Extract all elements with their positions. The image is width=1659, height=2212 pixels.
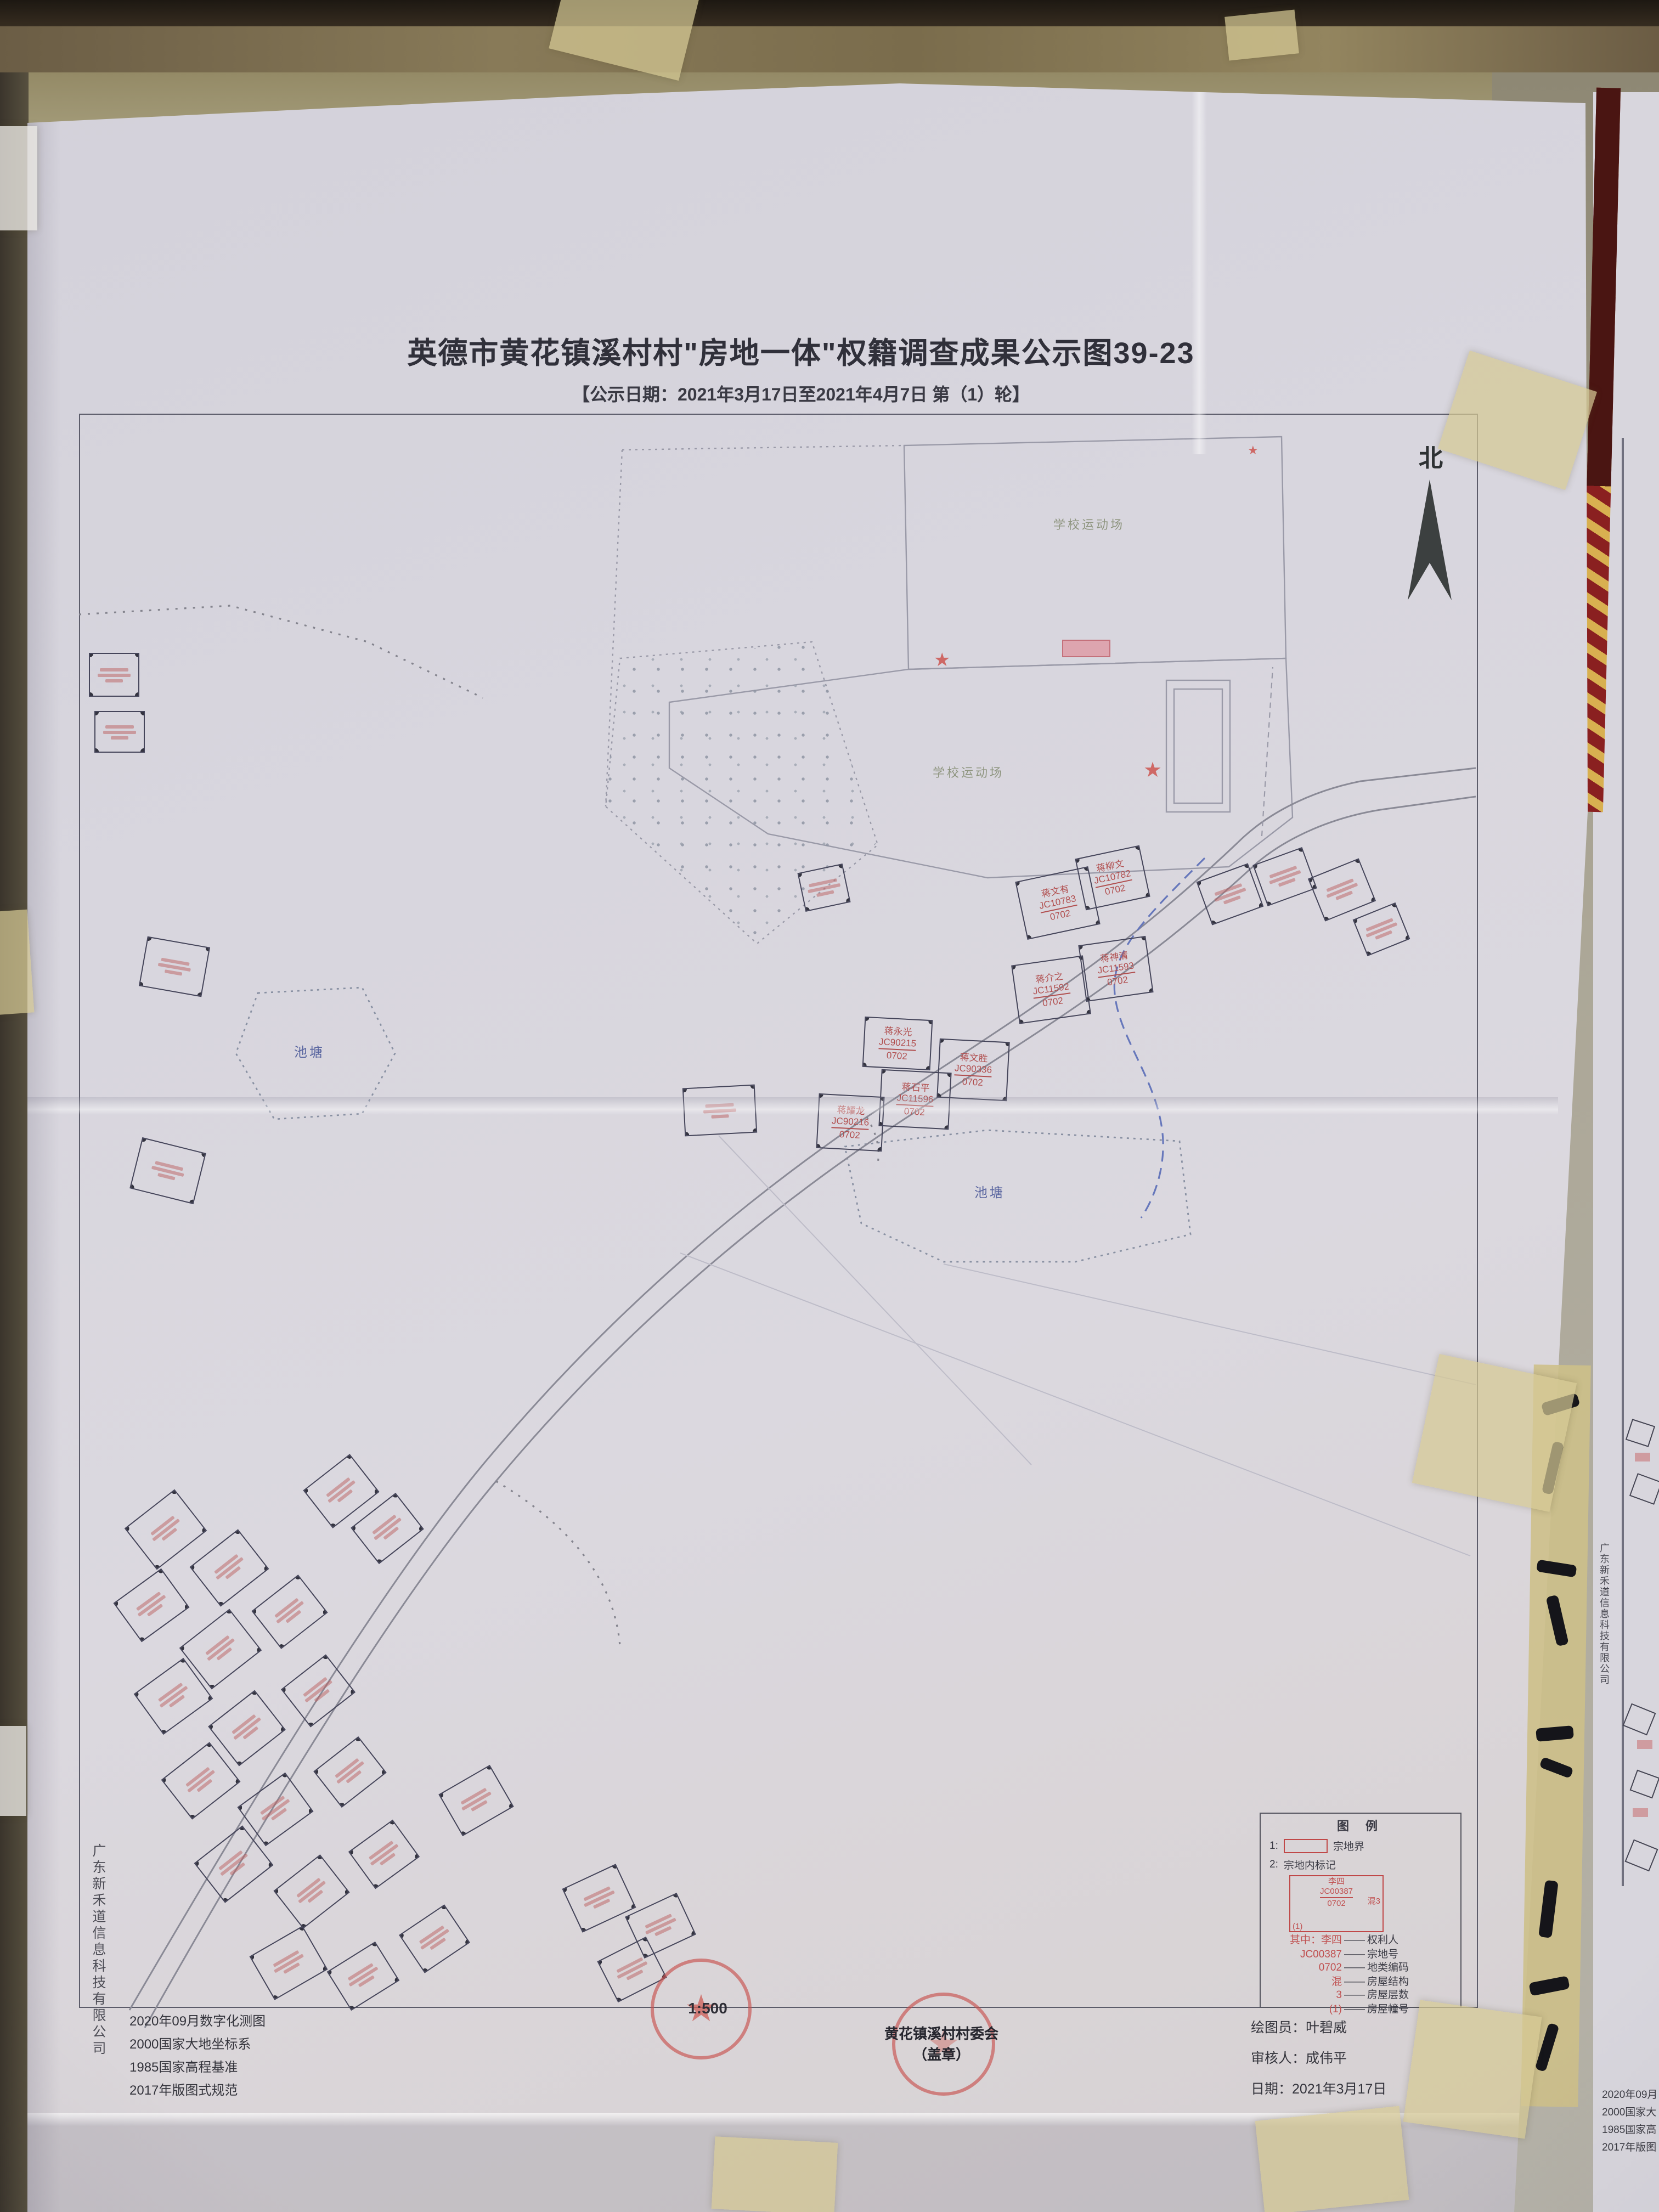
parcel-label: 蒋文有JC107830702 bbox=[1036, 882, 1080, 924]
legend-item-parcel-boundary: 1: 宗地界 bbox=[1269, 1838, 1460, 1853]
adjacent-parcel-label bbox=[1633, 1808, 1648, 1817]
sample-land-code: 0702 bbox=[1327, 1898, 1345, 1908]
sample-floors: 混3 bbox=[1368, 1896, 1380, 1906]
parcel-label-illegible bbox=[211, 1550, 248, 1585]
legend-item-parcel-annotation: 2: 宗地内标记 bbox=[1269, 1857, 1460, 1872]
parcel-label-illegible bbox=[1323, 875, 1361, 905]
tape-piece bbox=[1224, 10, 1299, 61]
owner-name: 蒋永光 bbox=[884, 1025, 912, 1038]
paper-crease bbox=[1192, 92, 1207, 454]
credits-block: 绘图员：叶碧威 审核人：成伟平 日期：2021年3月17日 bbox=[1251, 2012, 1386, 2104]
parcel-label-illegible bbox=[300, 1673, 337, 1708]
parcel-number: JC90336 bbox=[954, 1063, 992, 1077]
school-field-label-lower: 学校运动场 bbox=[933, 764, 1004, 781]
parcel-label-illegible bbox=[806, 875, 842, 900]
parcel-label-illegible bbox=[182, 1763, 219, 1798]
parcel-labeled: 蒋永光JC902150702 bbox=[862, 1017, 933, 1070]
land-code: 0702 bbox=[839, 1128, 860, 1140]
parcel-label-illegible bbox=[202, 1632, 239, 1667]
sample-parcel-no: JC00387 bbox=[1320, 1887, 1353, 1898]
parcel bbox=[139, 936, 210, 997]
sample-owner: 李四 bbox=[1328, 1876, 1345, 1886]
parcel-label-illegible bbox=[369, 1511, 406, 1546]
parcel-label-illegible bbox=[257, 1792, 295, 1827]
parcel-label-illegible bbox=[613, 1954, 651, 1985]
adjacent-parcel-label bbox=[1637, 1740, 1652, 1749]
paper-crease bbox=[27, 1097, 1558, 1115]
adjacent-footer-note-line: 2000国家大 bbox=[1602, 2104, 1659, 2122]
date-line: 日期：2021年3月17日 bbox=[1251, 2074, 1386, 2104]
adjacent-map-frame-line bbox=[1622, 438, 1623, 1886]
parcel-label-illegible bbox=[642, 1910, 680, 1941]
parcel-label-illegible bbox=[293, 1874, 330, 1909]
pond-label-central: 池塘 bbox=[974, 1183, 1005, 1201]
red-star-mark-small: ★ bbox=[1248, 443, 1259, 458]
paper-shadow bbox=[27, 110, 60, 2212]
parcel bbox=[94, 711, 145, 753]
parcel-number: JC90215 bbox=[878, 1036, 916, 1051]
north-arrow-icon bbox=[1408, 479, 1452, 600]
legend-entry: 其中：李四——权利人 bbox=[1272, 1934, 1460, 1948]
parcel-label-illegible bbox=[323, 1474, 360, 1509]
wall-beam bbox=[0, 0, 1659, 26]
village-name: 黄花镇溪村村委会 bbox=[884, 2025, 998, 2042]
pond-label-west: 池塘 bbox=[294, 1042, 325, 1061]
parcel-label-illegible bbox=[270, 1946, 308, 1979]
parcel-boundary-swatch bbox=[1284, 1838, 1328, 1853]
parcel-labeled: 蒋文胜JC903360702 bbox=[936, 1039, 1009, 1102]
adjacent-footer-notes: 2020年09月2000国家大1985国家高2017年版图 bbox=[1602, 2087, 1659, 2157]
adjacent-parcel bbox=[1629, 1770, 1659, 1799]
adjacent-parcel bbox=[1626, 1419, 1655, 1447]
tape-piece bbox=[712, 2136, 838, 2212]
survey-basis-note-line: 2020年09月数字化测图 bbox=[129, 2010, 266, 2033]
adjacent-parcel bbox=[1625, 1839, 1658, 1872]
parcel-label-illegible bbox=[215, 1847, 252, 1882]
wall-surface bbox=[0, 26, 1659, 72]
tape-piece bbox=[0, 126, 37, 230]
parcel-label-illegible bbox=[147, 1512, 184, 1547]
land-code: 0702 bbox=[1107, 973, 1128, 987]
land-code: 0702 bbox=[1042, 994, 1064, 1008]
tape-piece bbox=[0, 1726, 26, 1816]
main-poster-paper: 英德市黄花镇溪村村"房地一体"权籍调查成果公示图39-23 【公示日期：2021… bbox=[0, 0, 1659, 2212]
legend-sample-parcel: 李四 JC00387 0702 混3 (1) bbox=[1289, 1875, 1384, 1932]
parcel-labeled: 蒋神清JC115930702 bbox=[1078, 936, 1153, 1002]
parcel-label: 蒋文胜JC903360702 bbox=[953, 1052, 992, 1088]
parcel-label-illegible bbox=[150, 1158, 186, 1184]
survey-basis-note-line: 2017年版图式规范 bbox=[129, 2079, 266, 2102]
reviewer-line: 审核人：成伟平 bbox=[1251, 2043, 1386, 2074]
stamp-here-note: （盖章） bbox=[913, 2046, 970, 2063]
legend-entry: 0702——地类编码 bbox=[1272, 1962, 1460, 1976]
legend-entry: 3——房屋层数 bbox=[1272, 1989, 1460, 2003]
parcel-label-illegible bbox=[98, 665, 131, 684]
photo-of-posted-map: 广东新禾道信息科技有限公司 2020年09月2000国家大1985国家高2017… bbox=[0, 0, 1659, 2212]
tape-piece bbox=[1255, 2106, 1409, 2212]
parcel-label-illegible bbox=[458, 1784, 495, 1816]
parcel-label-illegible bbox=[1266, 862, 1304, 891]
parcel-label: 蒋神清JC115930702 bbox=[1096, 949, 1137, 989]
map-scale: 1:500 bbox=[658, 1999, 757, 2017]
legend-item2-label: 宗地内标记 bbox=[1284, 1857, 1336, 1872]
parcel-label-illegible bbox=[157, 955, 193, 979]
legend-box: 图 例 1: 宗地界 2: 宗地内标记 李四 JC00387 0702 混3 (… bbox=[1260, 1813, 1462, 2008]
legend-item1-label: 宗地界 bbox=[1333, 1838, 1364, 1853]
legend-title: 图 例 bbox=[1261, 1817, 1460, 1835]
owner-name: 蒋文胜 bbox=[960, 1052, 988, 1064]
legend-item1-no: 1: bbox=[1269, 1839, 1278, 1852]
wall-left-edge bbox=[0, 72, 29, 2212]
adjacent-footer-note-line: 2017年版图 bbox=[1602, 2140, 1659, 2157]
adjacent-company-vertical-text: 广东新禾道信息科技有限公司 bbox=[1598, 1543, 1612, 1696]
parcel-label-illegible bbox=[1211, 880, 1249, 909]
survey-basis-note-line: 1985国家高程基准 bbox=[129, 2056, 266, 2079]
parcel-labeled: 蒋介之JC115920702 bbox=[1011, 955, 1091, 1024]
parcel-label-illegible bbox=[103, 723, 136, 741]
red-star-mark: ★ bbox=[1143, 758, 1162, 783]
parcel-label: 蒋柳文JC107820702 bbox=[1091, 857, 1135, 899]
school-field-label-upper: 学校运动场 bbox=[1053, 516, 1125, 533]
land-code: 0702 bbox=[886, 1049, 907, 1061]
parcel-label-illegible bbox=[345, 1960, 382, 1993]
parcel-label-illegible bbox=[1363, 915, 1400, 944]
parcel-label-illegible bbox=[271, 1594, 308, 1629]
adjacent-parcel-label bbox=[1635, 1453, 1650, 1462]
parcel-number: JC90216 bbox=[831, 1115, 869, 1130]
survey-basis-notes: 2020年09月数字化测图2000国家大地坐标系1985国家高程基准2017年版… bbox=[129, 2010, 266, 2102]
parcel-label-illegible bbox=[416, 1922, 454, 1956]
owner-name: 蒋石平 bbox=[901, 1081, 930, 1094]
red-star-mark: ★ bbox=[934, 650, 951, 672]
parcel-label-illegible bbox=[580, 1883, 618, 1914]
parcel-label-illegible bbox=[365, 1837, 403, 1872]
parcel-label-illegible bbox=[133, 1588, 171, 1623]
land-code: 0702 bbox=[962, 1075, 983, 1087]
legend-entry: 混——房屋结构 bbox=[1272, 1976, 1460, 1989]
parcel bbox=[89, 653, 139, 697]
village-stamp-caption: 黄花镇溪村村委会 （盖章） bbox=[858, 2023, 1025, 2065]
company-vertical-text: 广东新禾道信息科技有限公司 bbox=[88, 1843, 109, 2063]
parcel-label-illegible bbox=[228, 1711, 266, 1746]
legend-item2-no: 2: bbox=[1269, 1858, 1278, 1870]
parcel-label-illegible bbox=[155, 1679, 193, 1714]
adjacent-parcel bbox=[1623, 1703, 1656, 1736]
parcel-label: 蒋介之JC115920702 bbox=[1031, 970, 1072, 1009]
adjacent-parcel bbox=[1629, 1473, 1659, 1505]
survey-basis-note-line: 2000国家大地坐标系 bbox=[129, 2033, 266, 2056]
parcel-label-illegible bbox=[331, 1754, 369, 1790]
adjacent-footer-note-line: 1985国家高 bbox=[1602, 2122, 1659, 2140]
parcel-label: 蒋永光JC902150702 bbox=[878, 1025, 917, 1062]
pink-annotation-box bbox=[1062, 640, 1110, 657]
legend-entry: JC00387——宗地号 bbox=[1272, 1948, 1460, 1962]
sample-building-no: (1) bbox=[1293, 1921, 1302, 1931]
adjacent-footer-note-line: 2020年09月 bbox=[1602, 2087, 1659, 2104]
drafter-line: 绘图员：叶碧威 bbox=[1251, 2012, 1386, 2043]
tape-piece bbox=[1403, 2000, 1542, 2139]
